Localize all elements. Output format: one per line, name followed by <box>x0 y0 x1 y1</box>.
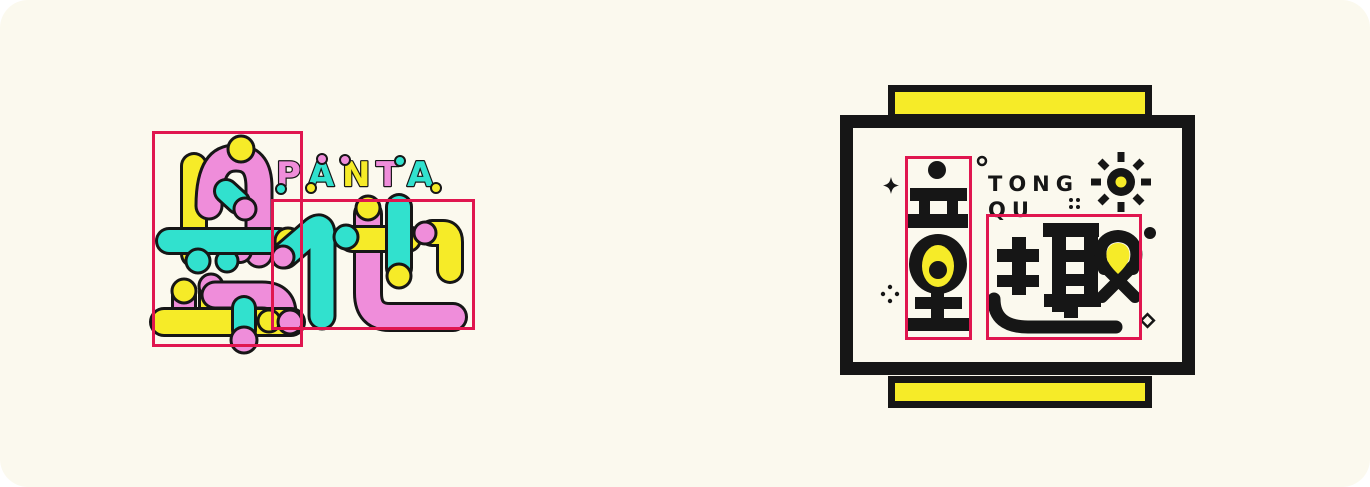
annotation-box-qu <box>986 214 1142 340</box>
letter-dot <box>395 156 405 166</box>
sun-icon <box>1091 152 1151 212</box>
design-canvas: P A N T A <box>0 0 1370 487</box>
letter-dot <box>306 183 316 193</box>
dot-icon <box>1144 227 1156 239</box>
annotation-box-tong <box>905 156 972 340</box>
panta-letter-a2: A <box>407 155 434 195</box>
letter-dot <box>431 183 441 193</box>
top-yellow-bar <box>892 89 1149 118</box>
tong-label: TONG <box>988 172 1079 196</box>
letter-dot <box>340 155 350 165</box>
bottom-yellow-bar <box>892 380 1149 405</box>
letter-dot <box>317 154 327 164</box>
annotation-box-panta-2 <box>271 199 475 330</box>
